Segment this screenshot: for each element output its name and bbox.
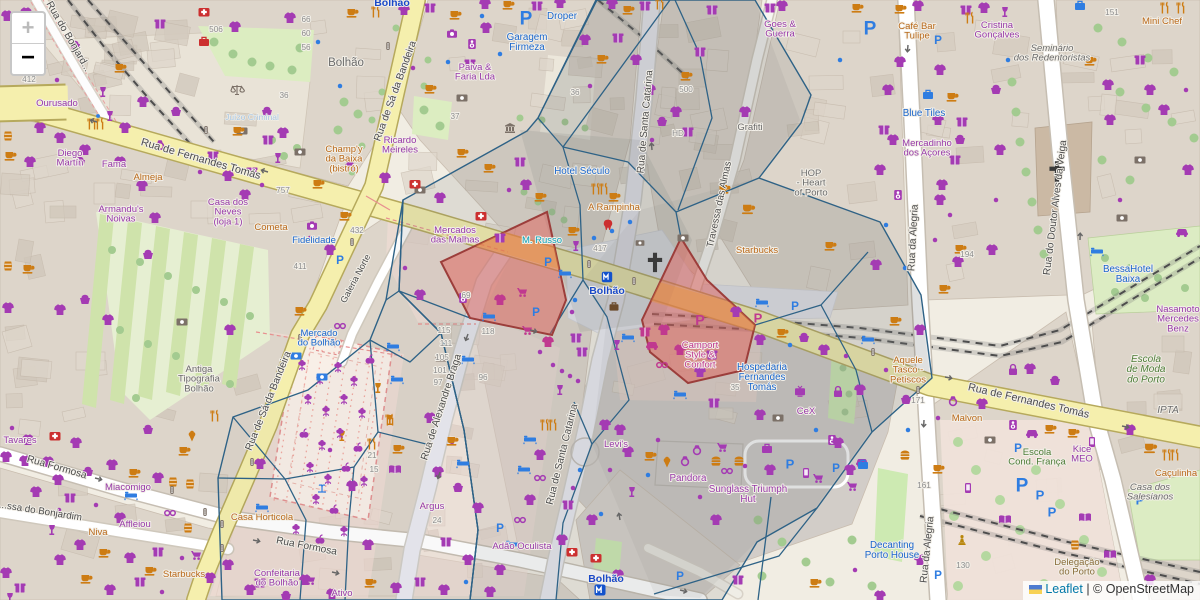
svg-text:Droper: Droper [547, 11, 578, 22]
svg-text:432: 432 [350, 226, 364, 235]
svg-text:97: 97 [433, 378, 443, 387]
svg-text:HD: HD [672, 129, 684, 138]
svg-text:151: 151 [1105, 8, 1119, 17]
svg-text:M. Russo: M. Russo [522, 235, 562, 246]
svg-text:118: 118 [481, 327, 494, 336]
svg-text:36: 36 [570, 88, 580, 97]
svg-text:Confeitariado Bolhão: Confeitariado Bolhão [254, 568, 301, 589]
svg-text:171: 171 [911, 396, 925, 405]
svg-text:Almeja: Almeja [133, 172, 163, 183]
svg-text:Bolhão: Bolhão [589, 285, 625, 297]
svg-text:Pandora: Pandora [669, 473, 707, 484]
svg-text:Caçulinha: Caçulinha [1155, 468, 1198, 479]
svg-text:Casa Horticola: Casa Horticola [231, 512, 294, 523]
svg-text:111: 111 [440, 339, 453, 348]
svg-text:Fama: Fama [102, 159, 127, 170]
svg-text:37: 37 [450, 112, 460, 121]
svg-text:Ativo: Ativo [331, 588, 352, 599]
svg-text:Champ'yda Baixa(bistró): Champ'yda Baixa(bistró) [325, 144, 363, 174]
svg-text:Blue Tiles: Blue Tiles [903, 108, 946, 119]
svg-text:Miacomigo: Miacomigo [105, 482, 151, 493]
svg-text:161: 161 [917, 481, 931, 490]
svg-text:Niva: Niva [88, 527, 108, 538]
svg-text:Hotel Século: Hotel Século [554, 166, 610, 177]
svg-text:105: 105 [435, 353, 449, 362]
svg-text:194: 194 [960, 250, 974, 259]
svg-text:KiceMEO: KiceMEO [1071, 444, 1093, 465]
svg-text:Argus: Argus [420, 501, 445, 512]
svg-text:Starbucks: Starbucks [163, 569, 205, 580]
svg-text:35: 35 [730, 383, 740, 392]
svg-text:DiegoMartín: DiegoMartín [57, 148, 84, 169]
svg-text:Levi's: Levi's [604, 439, 628, 450]
svg-text:Mini Chef: Mini Chef [1142, 16, 1182, 27]
svg-text:412: 412 [22, 75, 36, 84]
svg-text:Tavares: Tavares [3, 435, 37, 446]
svg-text:Juízo Criminal: Juízo Criminal [225, 112, 279, 122]
svg-text:GaragemFirmeza: GaragemFirmeza [507, 32, 548, 53]
svg-text:130: 130 [956, 561, 970, 570]
svg-text:Bolhão: Bolhão [328, 57, 364, 69]
svg-text:Paiva &Faria Lda: Paiva &Faria Lda [455, 62, 496, 83]
svg-text:101: 101 [433, 366, 447, 375]
svg-text:Mercadosdas Malhas: Mercadosdas Malhas [431, 225, 480, 246]
svg-text:A Rampinha: A Rampinha [588, 202, 640, 213]
svg-text:411: 411 [293, 262, 306, 271]
svg-text:DecantingPorto House: DecantingPorto House [865, 540, 920, 561]
svg-text:Bolhão: Bolhão [588, 573, 624, 585]
svg-text:CamportStyle &Confort: CamportStyle &Confort [682, 340, 719, 370]
svg-text:AqueleTasco -Petiscos: AqueleTasco -Petiscos [890, 355, 926, 385]
svg-text:IPTA: IPTA [1157, 405, 1179, 416]
svg-text:Malvon: Malvon [952, 413, 983, 424]
svg-text:66: 66 [301, 15, 311, 24]
svg-text:Mercadodo Bolhão: Mercadodo Bolhão [298, 328, 341, 349]
svg-text:15: 15 [369, 465, 379, 474]
svg-text:69: 69 [461, 291, 471, 300]
svg-text:36: 36 [279, 91, 289, 100]
svg-text:Ourusado: Ourusado [36, 98, 78, 109]
svg-text:Starbucks: Starbucks [736, 245, 778, 256]
svg-text:417: 417 [593, 244, 607, 253]
svg-text:Bolhão: Bolhão [374, 0, 410, 9]
svg-text:Delegaçãodo Porto: Delegaçãodo Porto [1054, 557, 1099, 578]
svg-text:Escolade Modado Porto: Escolade Modado Porto [1127, 354, 1166, 385]
svg-text:Mercadinhodos Açores: Mercadinhodos Açores [902, 138, 952, 159]
svg-text:Fidelidade: Fidelidade [292, 235, 336, 246]
svg-text:757: 757 [276, 186, 290, 195]
svg-text:60: 60 [301, 29, 311, 38]
svg-text:Casa dosSalesianos: Casa dosSalesianos [1127, 482, 1174, 503]
svg-text:24: 24 [432, 516, 442, 525]
svg-text:Adão Oculista: Adão Oculista [492, 541, 552, 552]
svg-text:CristinaGonçalves: CristinaGonçalves [975, 20, 1020, 41]
svg-text:Grafiti: Grafiti [737, 122, 762, 133]
svg-text:RicardoMeireles: RicardoMeireles [382, 135, 418, 156]
svg-text:115: 115 [437, 326, 450, 335]
svg-text:CeX: CeX [797, 406, 816, 417]
svg-text:21: 21 [367, 451, 377, 460]
svg-text:Affleiou: Affleiou [119, 519, 151, 530]
svg-text:Goes &Guerra: Goes &Guerra [764, 19, 796, 40]
svg-text:56: 56 [301, 43, 311, 52]
svg-text:Cometa: Cometa [254, 222, 288, 233]
svg-text:96: 96 [478, 373, 488, 382]
svg-text:506: 506 [209, 25, 223, 34]
svg-text:500: 500 [679, 85, 693, 94]
